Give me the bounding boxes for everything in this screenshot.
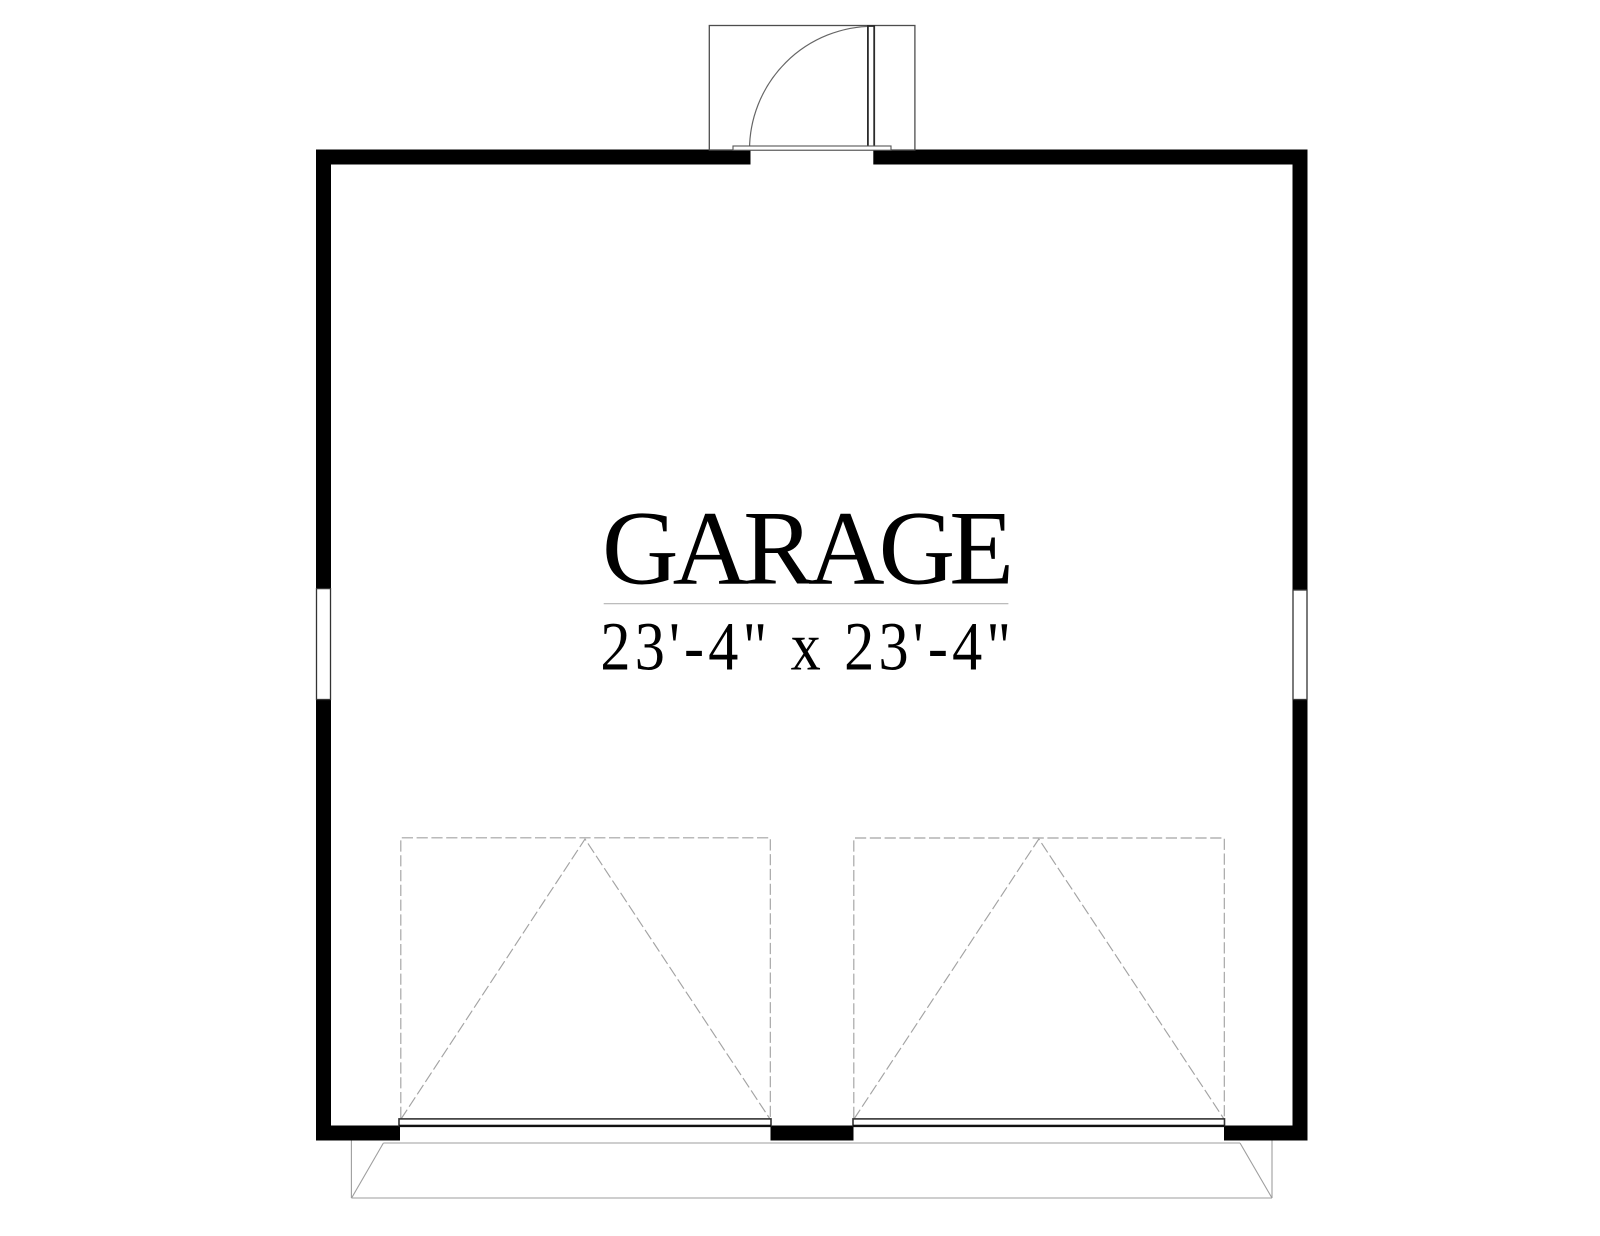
svg-text:GARAGE: GARAGE: [602, 489, 1014, 606]
svg-text:23'-4" x 23'-4": 23'-4" x 23'-4": [600, 609, 1011, 684]
